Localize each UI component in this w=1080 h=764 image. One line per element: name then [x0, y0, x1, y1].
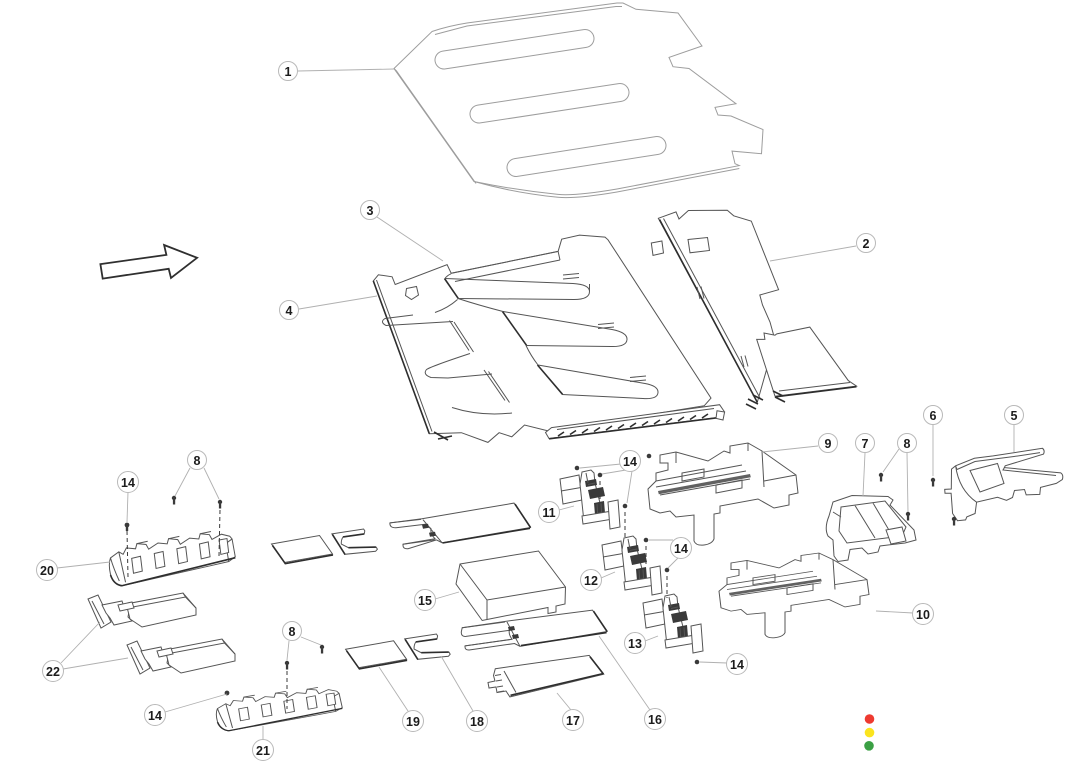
svg-text:19: 19 [406, 715, 420, 729]
svg-text:8: 8 [904, 437, 911, 451]
svg-text:4: 4 [286, 304, 293, 318]
svg-text:11: 11 [542, 506, 555, 520]
svg-text:14: 14 [730, 658, 744, 672]
svg-text:7: 7 [862, 437, 869, 451]
svg-text:21: 21 [256, 744, 270, 758]
svg-text:14: 14 [674, 542, 688, 556]
svg-text:17: 17 [566, 714, 580, 728]
svg-text:1: 1 [285, 65, 292, 79]
svg-text:14: 14 [148, 709, 162, 723]
svg-text:5: 5 [1011, 409, 1018, 423]
svg-text:14: 14 [623, 455, 637, 469]
svg-text:15: 15 [418, 594, 432, 608]
svg-text:22: 22 [46, 665, 60, 679]
svg-text:12: 12 [584, 574, 598, 588]
svg-text:14: 14 [121, 476, 135, 490]
svg-text:9: 9 [825, 437, 832, 451]
svg-text:8: 8 [194, 454, 201, 468]
svg-text:16: 16 [648, 713, 662, 727]
svg-text:18: 18 [470, 715, 484, 729]
svg-text:13: 13 [628, 637, 642, 651]
svg-text:10: 10 [916, 608, 930, 622]
svg-text:6: 6 [930, 409, 937, 423]
svg-text:8: 8 [289, 625, 296, 639]
svg-text:3: 3 [367, 204, 374, 218]
svg-text:2: 2 [863, 237, 870, 251]
svg-text:20: 20 [40, 564, 54, 578]
